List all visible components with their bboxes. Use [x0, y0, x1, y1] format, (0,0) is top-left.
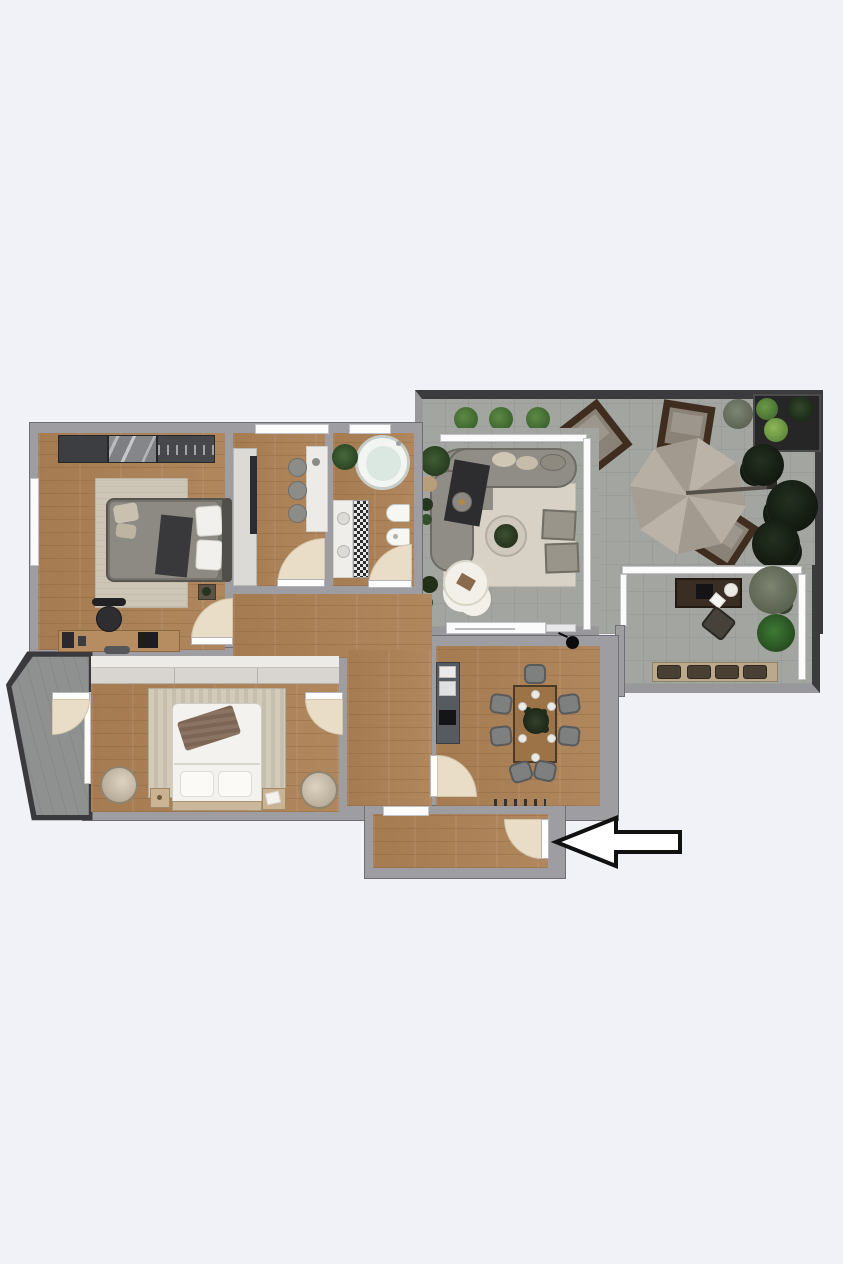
doorway-opening [383, 806, 429, 816]
sofa-cushion [516, 456, 538, 470]
corridor-floor [347, 650, 432, 806]
kitchen-sink-icon [439, 666, 456, 678]
nook-window-frame [620, 574, 627, 626]
dining-chair [489, 693, 514, 716]
pendant-lamp-icon [566, 636, 579, 649]
plate-icon [518, 734, 527, 743]
desk-item [78, 636, 86, 646]
living-plant-icon [420, 446, 450, 476]
coffee-table-plant-icon [494, 524, 518, 548]
dining-chair [557, 693, 582, 716]
armchair [541, 509, 577, 541]
barrel-chair [100, 766, 138, 804]
bed-throw-blanket [155, 514, 193, 577]
bench-cushion [657, 665, 681, 679]
ball-lamp-icon [724, 583, 738, 597]
window [255, 424, 329, 434]
cooktop-icon [439, 710, 456, 725]
terrace-tree-icon [742, 444, 784, 486]
floorplan-page: { "meta": { "title": "apartment-floor-pl… [0, 0, 843, 1264]
armchair [544, 542, 579, 573]
bed-headboard [172, 801, 262, 811]
sofa-cushion [540, 454, 566, 471]
living-window-frame [440, 434, 587, 442]
desk-fan [104, 646, 130, 654]
table-centerpiece-plant-icon [523, 708, 549, 734]
floor-plan [0, 0, 843, 1264]
nook-window-frame [798, 574, 806, 680]
living-plant-icon [421, 514, 432, 525]
window [30, 478, 39, 566]
bed-cushion [115, 523, 137, 540]
dining-chair [524, 664, 546, 684]
terrace-gray-bush-icon [723, 399, 753, 429]
laptop-icon [138, 632, 158, 648]
living-plant-icon [421, 576, 438, 593]
bench-cushion [715, 665, 739, 679]
plate-icon [531, 690, 540, 699]
desk-item [62, 632, 74, 648]
counter-flower-icon [312, 458, 320, 466]
nightstand-plant-icon [202, 587, 211, 596]
bed-duvet-fold [174, 763, 260, 765]
sink-icon [337, 545, 350, 558]
radiator-icon [494, 799, 546, 806]
stool [288, 481, 307, 500]
bathtub-faucet-icon [396, 441, 401, 446]
bathroom-plant-icon [332, 444, 358, 470]
desk-chair [92, 598, 126, 606]
dining-chair [532, 759, 558, 783]
bed-pillow [195, 539, 223, 570]
bed-pillow [180, 771, 214, 797]
side-table-candle-icon [459, 499, 465, 505]
window [349, 424, 391, 434]
living-window-frame [583, 438, 591, 630]
oven-column [250, 456, 257, 534]
stool [288, 458, 307, 477]
wardrobe-sliding [91, 656, 339, 668]
bed-pillow [195, 505, 223, 537]
stool [288, 504, 307, 523]
bathtub-basin [366, 446, 401, 481]
toilet [386, 504, 410, 522]
planter-plant-icon [788, 396, 814, 422]
door-leaf [368, 580, 412, 588]
wardrobe-marble-panel [108, 435, 157, 463]
plate-icon [547, 734, 556, 743]
desk-chair-seat [96, 606, 122, 632]
living-side-table [421, 476, 437, 492]
planter-plant-icon [764, 418, 788, 442]
nightstand-knob-icon [157, 795, 162, 800]
bed-pillow [218, 771, 252, 797]
dining-chair [489, 725, 513, 747]
door-leaf [191, 637, 233, 645]
kitchen-appliance-icon [439, 681, 456, 696]
bed-headboard [222, 498, 232, 582]
dining-chair [557, 725, 581, 747]
bench-cushion [743, 665, 767, 679]
entrance-arrow [548, 810, 688, 874]
sofa-cushion [492, 452, 516, 467]
bidet-drain-icon [393, 534, 398, 539]
sliding-door [446, 622, 546, 634]
nook-plant-icon [749, 566, 797, 614]
terrace-tree-icon [752, 520, 800, 568]
sliding-door-track [546, 624, 576, 632]
sink-icon [337, 512, 350, 525]
planter-plant-icon [756, 398, 778, 420]
plate-icon [547, 702, 556, 711]
wardrobe-shelves [157, 435, 215, 463]
wardrobe-sliding-lower [91, 668, 339, 684]
plate-icon [518, 702, 527, 711]
nook-plant-icon [757, 614, 795, 652]
mosaic-tile-strip [353, 500, 369, 578]
barrel-chair [300, 771, 338, 809]
bench-cushion [687, 665, 711, 679]
corridor-floor [233, 594, 432, 658]
door-leaf [277, 579, 325, 587]
wardrobe [58, 435, 108, 463]
